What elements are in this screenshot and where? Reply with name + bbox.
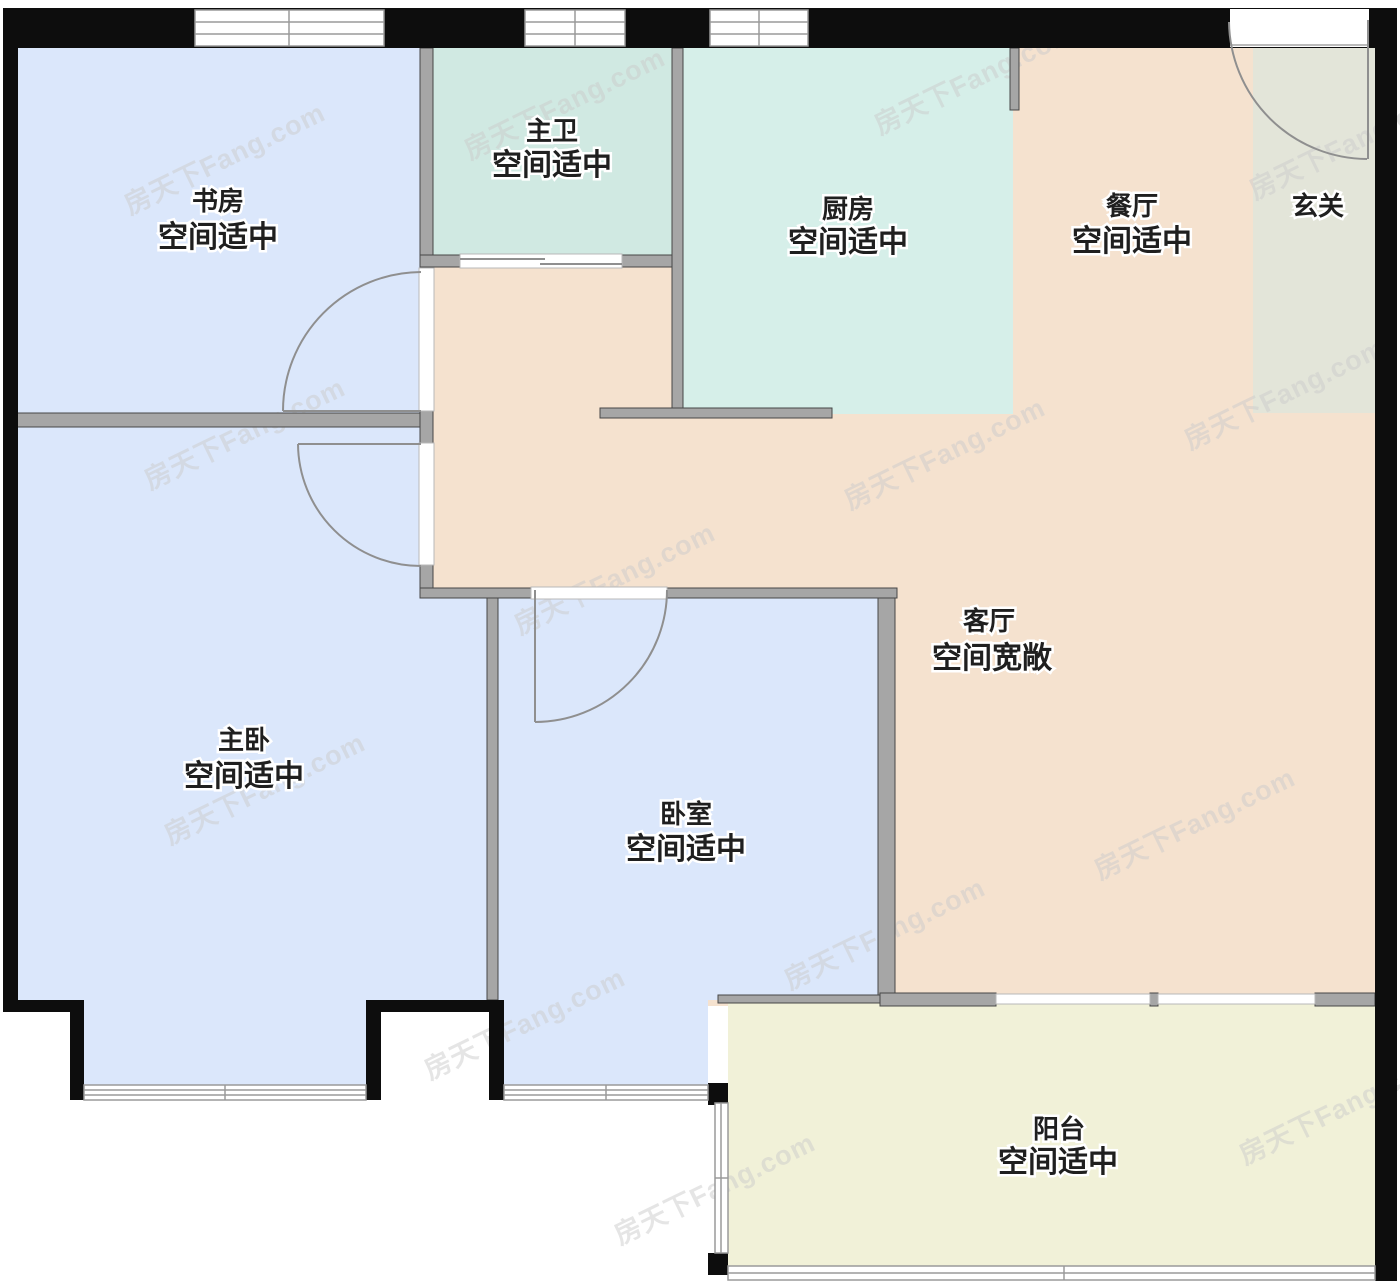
wall-bedroom-balcony bbox=[718, 995, 880, 1003]
master-bay-window bbox=[84, 1085, 366, 1100]
wall-south-mid bbox=[366, 1000, 504, 1012]
study-door-opening bbox=[419, 268, 434, 411]
bedroom-door-opening bbox=[531, 587, 667, 599]
wall-bedroom-living bbox=[878, 598, 895, 1000]
living-status: 空间宽敞 bbox=[932, 641, 1053, 675]
kitchen-status: 空间适中 bbox=[788, 226, 908, 259]
entry-label: 玄关 bbox=[1292, 191, 1344, 221]
bedroom-status: 空间适中 bbox=[626, 833, 746, 866]
kitchen-north-window bbox=[710, 10, 808, 46]
bath-sliding-door-opening bbox=[460, 254, 622, 268]
bedroom-label: 卧室 bbox=[660, 799, 712, 829]
study-label: 书房 bbox=[192, 186, 244, 216]
wall-bedroom-north bbox=[420, 588, 531, 598]
wall-bath-south bbox=[420, 255, 460, 267]
wall-east bbox=[1375, 8, 1397, 1281]
wall-kitchen-east-stub bbox=[1010, 48, 1019, 110]
wall-bedroom-north bbox=[667, 588, 897, 598]
entrance-opening bbox=[1230, 9, 1369, 47]
kitchen-label: 厨房 bbox=[822, 194, 874, 224]
wall-study-masterbed bbox=[17, 413, 433, 427]
master-bedroom-label: 主卧 bbox=[218, 725, 270, 755]
wall-hall-stub bbox=[420, 411, 433, 443]
master-bath-label: 主卫 bbox=[526, 116, 578, 146]
dining-label: 餐厅 bbox=[1106, 191, 1158, 221]
wall-kitchen-south bbox=[600, 408, 832, 418]
wall-south-step bbox=[3, 1000, 84, 1012]
balcony-west-window bbox=[715, 1103, 728, 1253]
bedroom-bay-east-post bbox=[708, 1083, 728, 1105]
master-bedroom-status: 空间适中 bbox=[184, 760, 304, 793]
study-north-window bbox=[195, 10, 384, 46]
balcony-southwest-post bbox=[708, 1253, 728, 1275]
wall-kitchen-west bbox=[672, 48, 683, 413]
master-bath-status: 空间适中 bbox=[492, 149, 612, 182]
balcony-label: 阳台 bbox=[1033, 1114, 1085, 1144]
balcony-sliding-door bbox=[996, 994, 1150, 1004]
bath-north-window bbox=[525, 10, 625, 46]
balcony-south-window bbox=[728, 1266, 1375, 1280]
wall-study-bath bbox=[420, 48, 433, 268]
floor-plan-canvas: 房天下Fang.com 房天下Fang.com 房天下Fang.com 房天下F… bbox=[0, 0, 1400, 1281]
balcony-door-mullion bbox=[1150, 993, 1158, 1006]
bedroom-bay-west-post bbox=[489, 1012, 504, 1100]
wall-living-balcony bbox=[1315, 993, 1375, 1006]
dining-status: 空间适中 bbox=[1072, 225, 1192, 258]
wall-masterbed-bedroom bbox=[487, 598, 498, 1000]
bedroom-bay-window bbox=[504, 1085, 708, 1100]
floor-plan: 房天下Fang.com 房天下Fang.com 房天下Fang.com 房天下F… bbox=[0, 0, 1400, 1281]
balcony-sliding-door bbox=[1158, 994, 1315, 1004]
living-label: 客厅 bbox=[963, 606, 1015, 636]
balcony-status: 空间适中 bbox=[998, 1146, 1118, 1179]
study-status: 空间适中 bbox=[158, 221, 278, 254]
wall-living-balcony bbox=[880, 993, 996, 1006]
wall-west bbox=[3, 8, 18, 1012]
master-bay-east-post bbox=[366, 1012, 381, 1100]
master-bay-west-post bbox=[70, 1012, 84, 1100]
master-bedroom-door-opening bbox=[419, 443, 434, 565]
